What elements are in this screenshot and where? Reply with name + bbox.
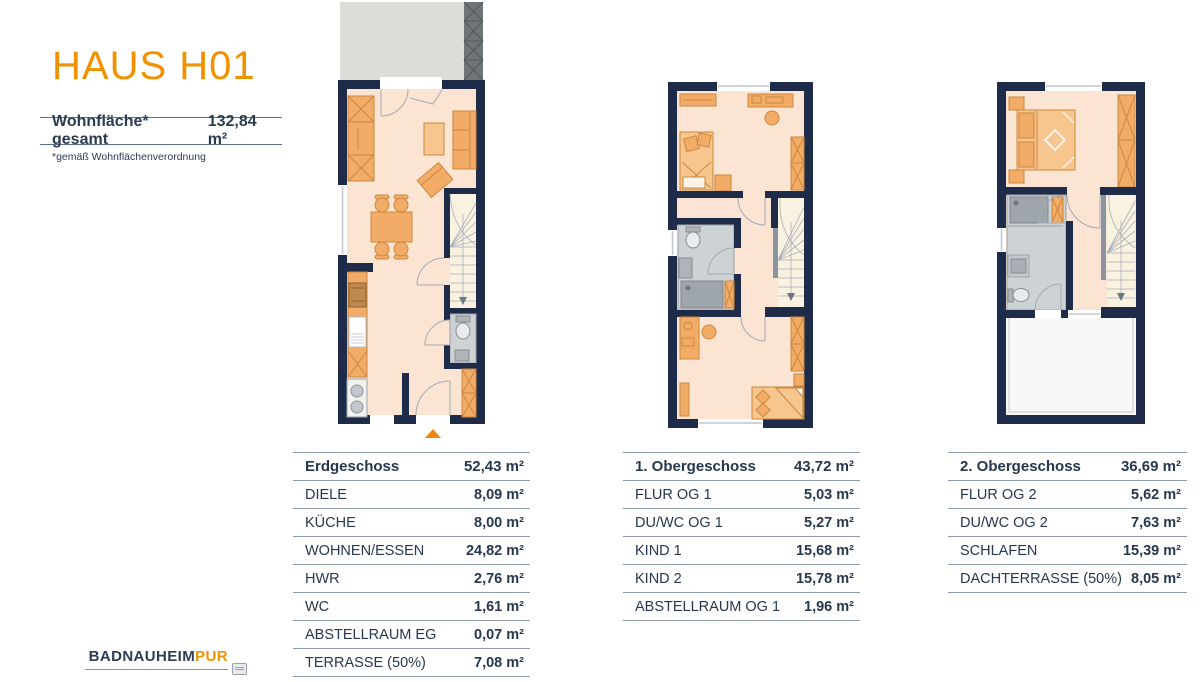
room-value: 15,78 m² (769, 565, 860, 593)
room-label: SCHLAFEN (948, 537, 1096, 565)
chair (765, 111, 779, 125)
room-value: 1,96 m² (769, 593, 860, 621)
floorplan-obergeschoss-1 (668, 70, 814, 430)
shower (681, 281, 723, 308)
table-header-row: Erdgeschoss 52,43 m² (293, 453, 530, 481)
table-row: KÜCHE8,00 m² (293, 509, 530, 537)
room-value: 1,61 m² (439, 593, 530, 621)
brand-mark-icon (232, 663, 247, 675)
table-row: ABSTELLRAUM OG 11,96 m² (623, 593, 860, 621)
floor-total: 52,43 m² (439, 453, 530, 481)
table-row: KIND 215,78 m² (623, 565, 860, 593)
floor-title: Erdgeschoss (293, 453, 439, 481)
toilet (456, 323, 470, 339)
room-label: ABSTELLRAUM EG (293, 621, 439, 649)
brand-logo: BADNAUHEIMPUR (85, 648, 228, 670)
sink (679, 258, 692, 278)
room-value: 24,82 m² (439, 537, 530, 565)
room-label: FLUR OG 2 (948, 481, 1096, 509)
wardrobe (348, 96, 374, 181)
sink (455, 350, 469, 361)
floorplan-obergeschoss-2 (997, 70, 1146, 430)
room-label: WC (293, 593, 439, 621)
total-area-label: Wohnfläche* gesamt (40, 113, 208, 149)
chair (702, 325, 716, 339)
table-erdgeschoss: Erdgeschoss 52,43 m² DIELE8,09 m² KÜCHE8… (293, 452, 530, 677)
table-row: DU/WC OG 27,63 m² (948, 509, 1187, 537)
floor-total: 36,69 m² (1096, 453, 1187, 481)
toilet (1013, 289, 1029, 302)
floorplan-sheet: HAUS H01 Wohnfläche* gesamt 132,84 m² *g… (0, 0, 1200, 682)
table-row: DU/WC OG 15,27 m² (623, 509, 860, 537)
room-value: 15,39 m² (1096, 537, 1187, 565)
room-value: 8,09 m² (439, 481, 530, 509)
table-row: KIND 115,68 m² (623, 537, 860, 565)
room-value: 8,00 m² (439, 509, 530, 537)
room-label: HWR (293, 565, 439, 593)
room-label: WOHNEN/ESSEN (293, 537, 439, 565)
room-label: DACHTERRASSE (50%) (948, 565, 1096, 593)
table-row: WOHNEN/ESSEN24,82 m² (293, 537, 530, 565)
total-area-summary: Wohnfläche* gesamt 132,84 m² (40, 117, 282, 145)
coffee-table (424, 123, 444, 155)
room-value: 5,27 m² (769, 509, 860, 537)
room-label: KÜCHE (293, 509, 439, 537)
room-value: 7,08 m² (439, 649, 530, 677)
table-obergeschoss-2: 2. Obergeschoss 36,69 m² FLUR OG 25,62 m… (948, 452, 1187, 593)
sofa (453, 111, 476, 169)
entrance-arrow-icon (425, 429, 441, 438)
table-row: SCHLAFEN15,39 m² (948, 537, 1187, 565)
storage-cabinet (462, 369, 476, 417)
wardrobe (1118, 95, 1135, 187)
table-row: DACHTERRASSE (50%)8,05 m² (948, 565, 1187, 593)
room-value: 15,68 m² (769, 537, 860, 565)
toilet (686, 232, 700, 248)
page-title: HAUS H01 (52, 44, 256, 89)
table-header-row: 1. Obergeschoss 43,72 m² (623, 453, 860, 481)
garage-area (340, 2, 464, 80)
table-row: WC1,61 m² (293, 593, 530, 621)
floor-total: 43,72 m² (769, 453, 860, 481)
room-value: 7,63 m² (1096, 509, 1187, 537)
table-row: FLUR OG 25,62 m² (948, 481, 1187, 509)
room-value: 5,03 m² (769, 481, 860, 509)
floor-title: 2. Obergeschoss (948, 453, 1096, 481)
brand-name-accent: PUR (195, 648, 228, 665)
area-footnote: *gemäß Wohnflächenverordnung (52, 151, 206, 163)
room-label: FLUR OG 1 (623, 481, 769, 509)
room-label: ABSTELLRAUM OG 1 (623, 593, 769, 621)
room-label: KIND 1 (623, 537, 769, 565)
table-row: ABSTELLRAUM EG0,07 m² (293, 621, 530, 649)
table-row: DIELE8,09 m² (293, 481, 530, 509)
room-label: KIND 2 (623, 565, 769, 593)
brand-name-primary: BADNAUHEIM (89, 648, 196, 665)
total-area-value: 132,84 m² (208, 113, 282, 149)
room-label: DU/WC OG 2 (948, 509, 1096, 537)
room-value: 2,76 m² (439, 565, 530, 593)
table-obergeschoss-1: 1. Obergeschoss 43,72 m² FLUR OG 15,03 m… (623, 452, 860, 621)
table-header-row: 2. Obergeschoss 36,69 m² (948, 453, 1187, 481)
room-label: TERRASSE (50%) (293, 649, 439, 677)
table-row: TERRASSE (50%)7,08 m² (293, 649, 530, 677)
floorplan-erdgeschoss (338, 0, 486, 440)
room-value: 0,07 m² (439, 621, 530, 649)
room-label: DIELE (293, 481, 439, 509)
bathroom (677, 218, 741, 317)
room-label: DU/WC OG 1 (623, 509, 769, 537)
bathroom (1007, 195, 1073, 310)
table-row: FLUR OG 15,03 m² (623, 481, 860, 509)
table-row: HWR2,76 m² (293, 565, 530, 593)
floor-title: 1. Obergeschoss (623, 453, 769, 481)
room-value: 5,62 m² (1096, 481, 1187, 509)
